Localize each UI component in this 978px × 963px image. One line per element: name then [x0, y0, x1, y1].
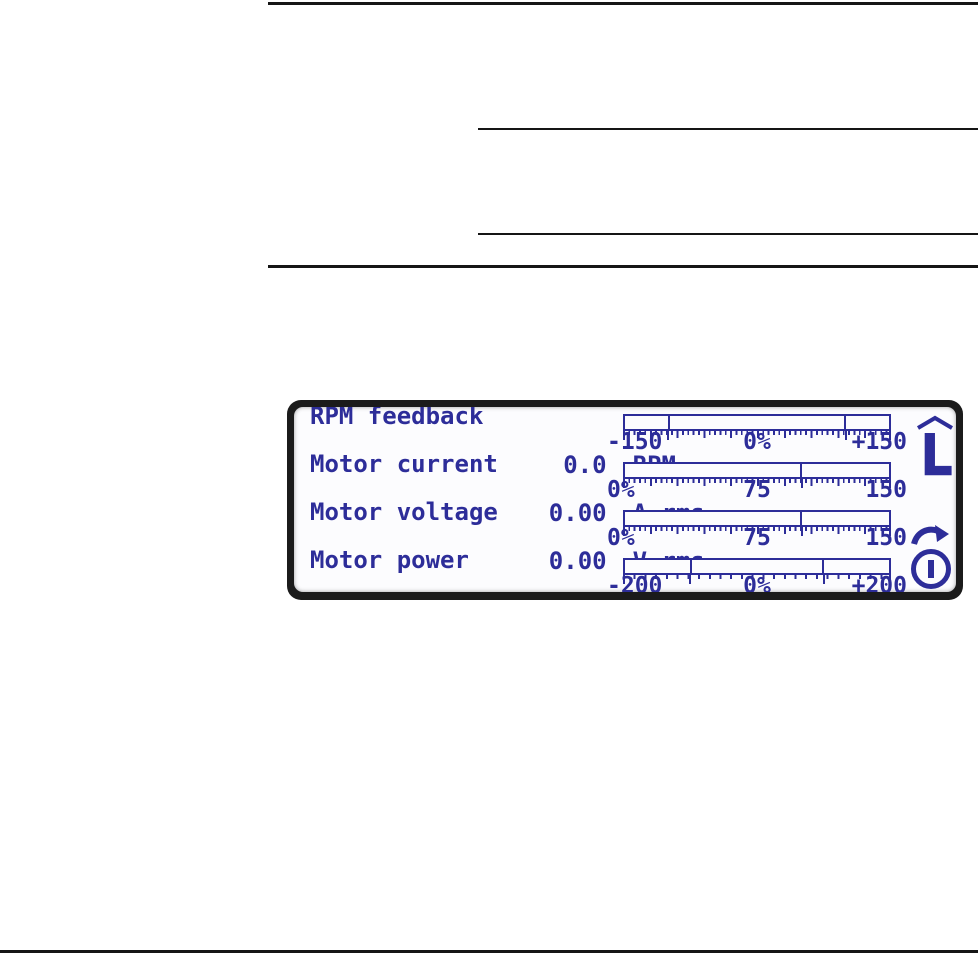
scale-min: 0% [607, 480, 635, 500]
section-rule [268, 265, 978, 268]
local-control-letter: L [920, 429, 953, 483]
scale-min: 0% [607, 528, 635, 548]
scale-mid: 0% [743, 576, 771, 592]
lcd-screen: RPM feedback 0.0RPM -150 [294, 407, 956, 592]
control-panel-lcd-bezel: RPM feedback 0.0RPM -150 [287, 400, 963, 600]
scale-max: +200 [852, 576, 907, 592]
note-bottom-rule [478, 233, 978, 235]
gauge-marker-100pct [800, 510, 802, 527]
signal-name: RPM feedback [310, 407, 483, 428]
gauge-marker-plus100 [822, 558, 824, 575]
signal-name: Motor current [310, 452, 498, 476]
scale-mid: 0% [743, 432, 771, 452]
page-top-rule [268, 2, 978, 5]
gauge-scale-labels: 0% 75 150 [607, 480, 907, 500]
gauge-scale-labels: -200 0% +200 [607, 576, 907, 592]
document-page: RPM feedback 0.0RPM -150 [0, 0, 978, 963]
gauge-scale-labels: 0% 75 150 [607, 528, 907, 548]
gauge-marker-minus100 [668, 414, 670, 431]
note-top-rule [478, 128, 978, 130]
gauge-marker-100pct [800, 462, 802, 479]
scale-mid: 75 [743, 480, 771, 500]
scale-mid: 75 [743, 528, 771, 548]
gauge-marker-minus100 [690, 558, 692, 575]
signal-name: Motor voltage [310, 500, 498, 524]
signal-name: Motor power [310, 548, 469, 572]
scale-max: +150 [852, 432, 907, 452]
scale-max: 150 [865, 528, 907, 548]
scale-min: -200 [607, 576, 662, 592]
scale-max: 150 [865, 480, 907, 500]
scale-min: -150 [607, 432, 662, 452]
gauge-scale-labels: -150 0% +150 [607, 432, 907, 452]
gauge-marker-plus100 [844, 414, 846, 431]
page-bottom-rule [0, 950, 978, 953]
stop-status-icon [909, 546, 953, 592]
